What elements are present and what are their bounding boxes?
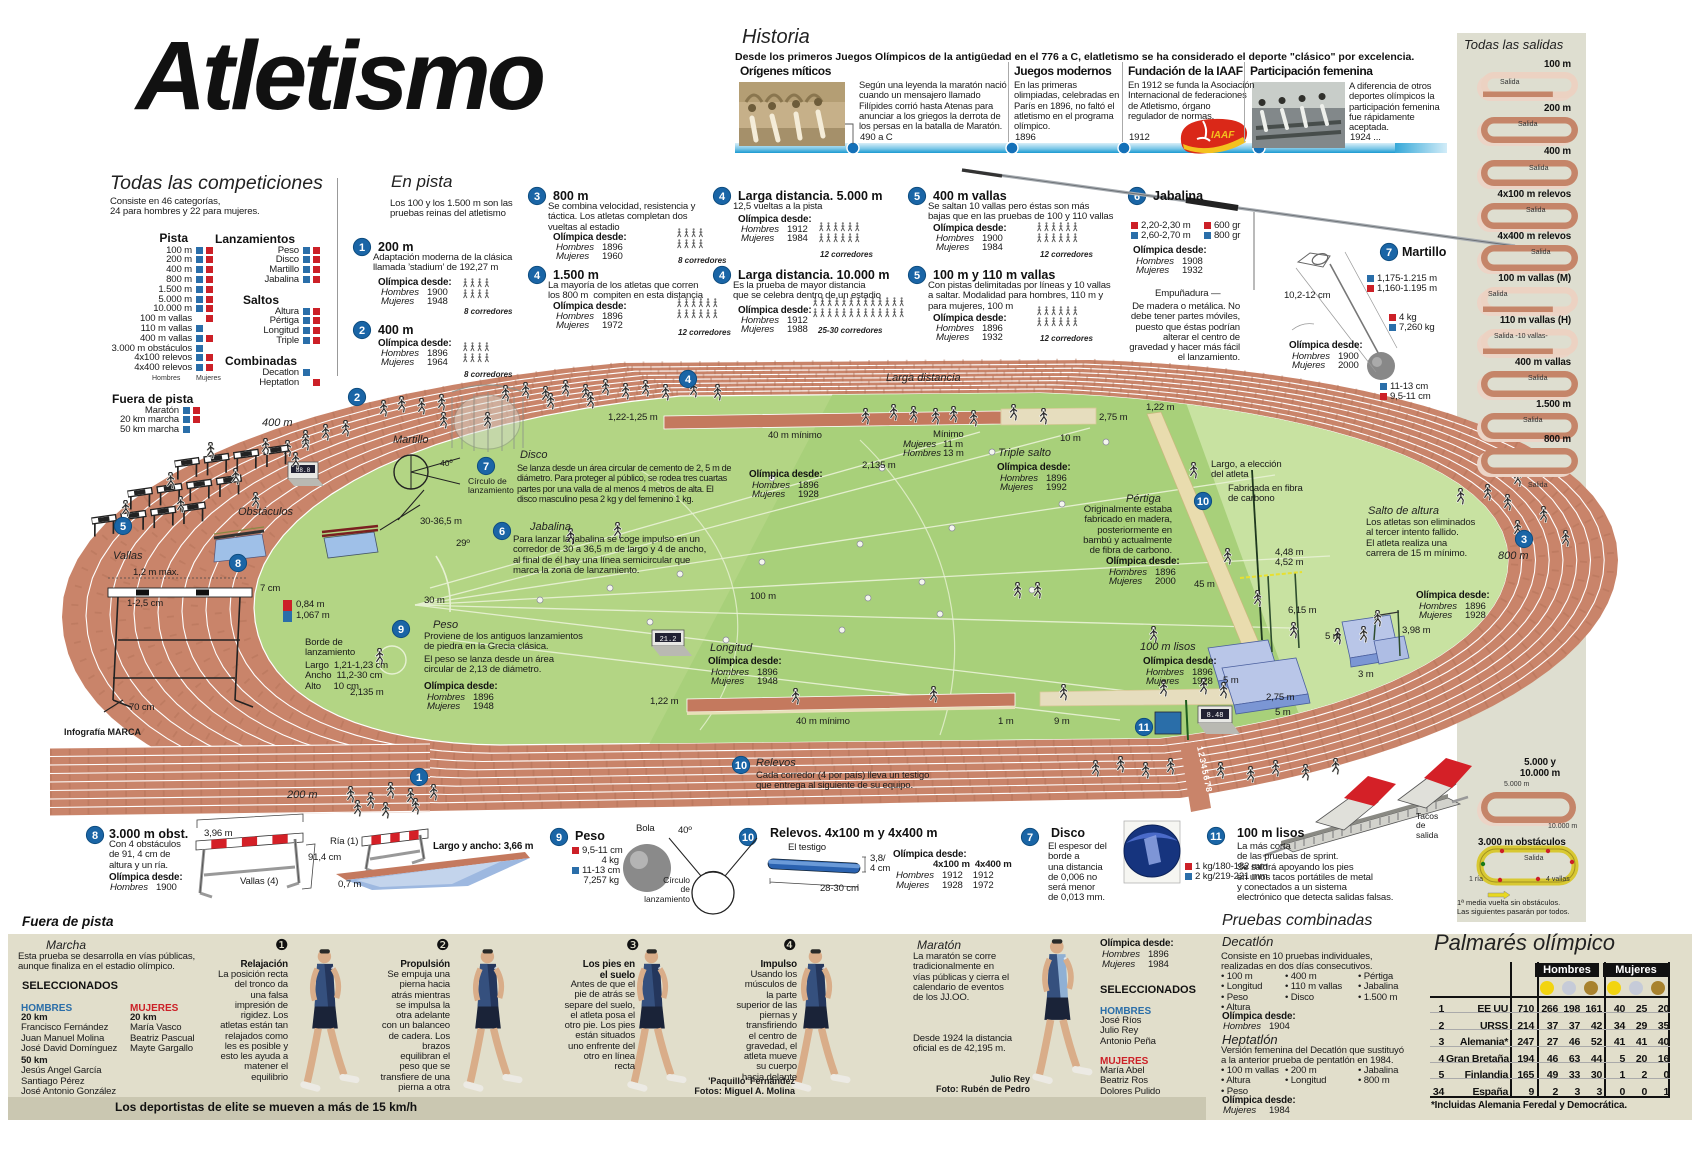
- svg-text:7: 7: [483, 461, 489, 473]
- svg-text:21.2: 21.2: [660, 636, 677, 644]
- svg-text:2: 2: [354, 392, 360, 404]
- svg-text:7: 7: [1386, 247, 1392, 259]
- svg-text:8: 8: [92, 830, 98, 842]
- svg-text:1: 1: [416, 772, 422, 784]
- svg-text:4: 4: [685, 374, 692, 386]
- svg-text:9: 9: [398, 624, 404, 636]
- svg-text:5: 5: [120, 521, 126, 533]
- svg-text:7: 7: [1027, 832, 1033, 844]
- svg-text:10: 10: [742, 832, 754, 844]
- svg-text:3: 3: [534, 191, 540, 203]
- svg-text:1: 1: [359, 242, 365, 254]
- svg-text:8: 8: [235, 558, 241, 570]
- svg-text:2: 2: [359, 325, 365, 337]
- svg-text:5: 5: [914, 191, 920, 203]
- svg-text:11: 11: [1210, 831, 1222, 843]
- svg-text:9: 9: [556, 832, 562, 844]
- svg-text:4: 4: [534, 270, 541, 282]
- svg-text:4: 4: [719, 191, 726, 203]
- svg-text:IAAF: IAAF: [1211, 130, 1235, 141]
- svg-text:8.48: 8.48: [1207, 712, 1224, 720]
- svg-text:4: 4: [719, 270, 726, 282]
- svg-text:5: 5: [914, 270, 920, 282]
- svg-text:3: 3: [1521, 534, 1527, 546]
- svg-text:10: 10: [1197, 496, 1209, 508]
- svg-text:10: 10: [735, 760, 747, 772]
- svg-text:6: 6: [499, 526, 505, 538]
- svg-text:11: 11: [1138, 722, 1150, 734]
